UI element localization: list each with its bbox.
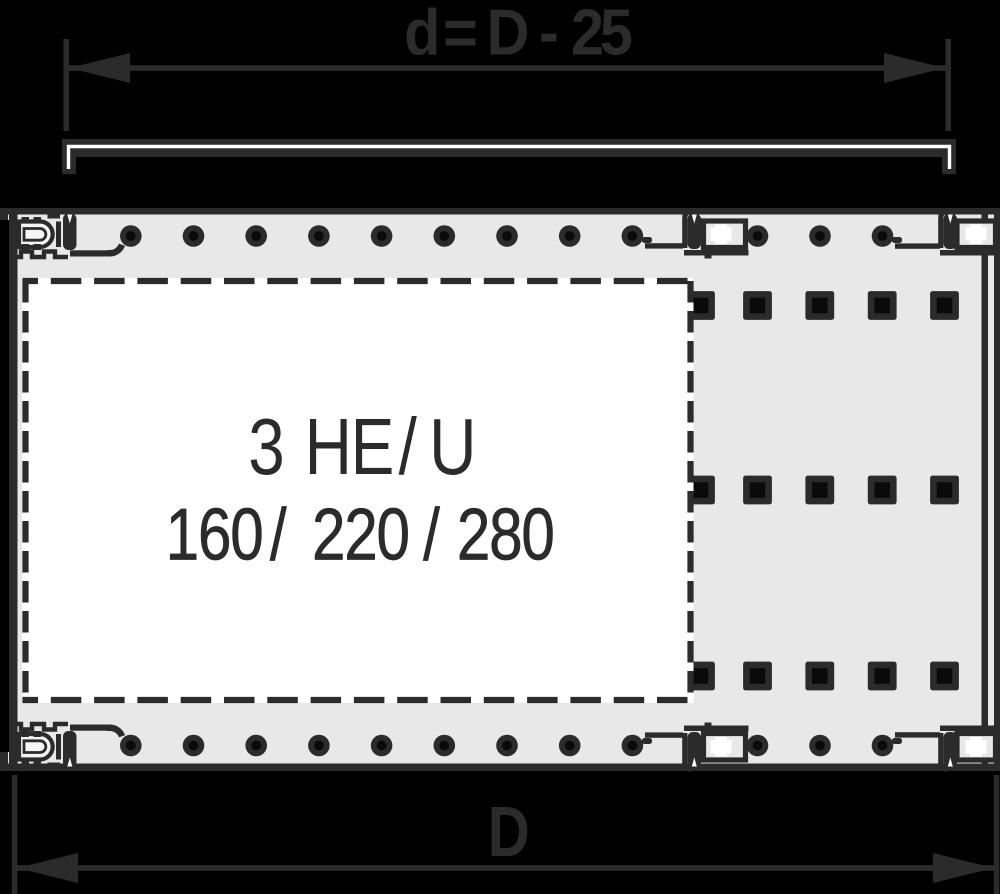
svg-text:D: D — [488, 791, 530, 871]
svg-text:160/220/280: 160/220/280 — [166, 494, 554, 576]
svg-text:3HE/U: 3HE/U — [248, 402, 475, 492]
